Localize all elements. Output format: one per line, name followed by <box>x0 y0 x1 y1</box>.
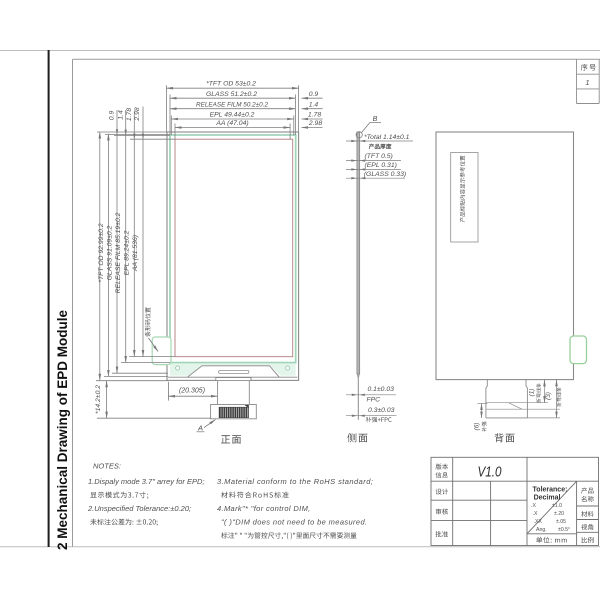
svg-text:.X: .X <box>531 503 536 509</box>
svg-text:2.Unspecified Tolerance:±0.20;: 2.Unspecified Tolerance:±0.20; <box>87 504 191 513</box>
svg-text:*Total 1.14±0.1: *Total 1.14±0.1 <box>364 134 410 141</box>
svg-text:1.78: 1.78 <box>308 112 321 119</box>
svg-text:±.20: ±.20 <box>554 511 564 517</box>
svg-text:.X: .X <box>533 511 538 517</box>
svg-text:"( )"DIM does not need to be m: "( )"DIM does not need to be measured. <box>221 518 368 527</box>
svg-text:Tolerance:: Tolerance: <box>533 487 568 494</box>
svg-text:0.9: 0.9 <box>109 111 116 121</box>
svg-text:(20.305): (20.305) <box>179 387 205 394</box>
svg-text:0.9: 0.9 <box>309 91 319 98</box>
svg-text:1.78: 1.78 <box>126 108 133 121</box>
svg-text:*TFT OD 92.99±0.2: *TFT OD 92.99±0.2 <box>98 223 105 282</box>
svg-text:4.Mark"* "for control DIM,: 4.Mark"* "for control DIM, <box>217 504 311 513</box>
svg-text:A: A <box>197 424 203 433</box>
svg-text:AA (81.536): AA (81.536) <box>132 235 139 272</box>
svg-text:GLASS 51.2±0.2: GLASS 51.2±0.2 <box>206 91 257 98</box>
svg-text:0.1±0.03: 0.1±0.03 <box>368 386 395 393</box>
svg-text:2.98: 2.98 <box>134 107 141 121</box>
svg-text:EPL 89.24±0.2: EPL 89.24±0.2 <box>124 230 131 275</box>
svg-text:Decimal: Decimal <box>534 495 561 502</box>
svg-text:Ang.: Ang. <box>536 527 547 533</box>
svg-text:NOTES:: NOTES: <box>93 462 121 471</box>
svg-text:3.Material conform to the RoHS: 3.Material conform to the RoHS standard; <box>217 477 373 486</box>
svg-text:AA (47.04): AA (47.04) <box>215 120 248 127</box>
svg-text:(6): (6) <box>474 423 481 431</box>
svg-text:GLASS 91.09±0.2: GLASS 91.09±0.2 <box>107 225 114 280</box>
svg-text:.XX: .XX <box>534 519 543 525</box>
svg-text:(GLASS 0.33): (GLASS 0.33) <box>364 171 406 178</box>
svg-text:*TFT OD 53±0.2: *TFT OD 53±0.2 <box>206 81 256 88</box>
svg-text:±0.5°: ±0.5° <box>558 527 570 533</box>
svg-text:±.05: ±.05 <box>556 519 566 525</box>
svg-text:1.4: 1.4 <box>309 101 319 108</box>
svg-text:RELEASE FILM 85.19±0.2: RELEASE FILM 85.19±0.2 <box>115 212 122 293</box>
svg-text:1: 1 <box>585 78 589 87</box>
svg-text:2 Mechanical Drawing of EPD Mo: 2 Mechanical Drawing of EPD Module <box>55 309 70 550</box>
svg-text:V1.0: V1.0 <box>478 465 502 481</box>
svg-text:0.3±0.03: 0.3±0.03 <box>368 407 395 414</box>
svg-text:B: B <box>373 114 378 123</box>
svg-text:(3): (3) <box>545 392 552 400</box>
svg-text:1.4: 1.4 <box>117 110 124 120</box>
svg-text:±1.0: ±1.0 <box>552 503 562 509</box>
svg-text:EPL 49.44±0.2: EPL 49.44±0.2 <box>210 112 255 119</box>
svg-text:(TFT 0.5): (TFT 0.5) <box>365 153 393 160</box>
svg-text:1.Dispaly mode 3.7" arrey for: 1.Dispaly mode 3.7" arrey for EPD; <box>88 477 204 486</box>
svg-text:RELEASE FILM 50.2±0.2: RELEASE FILM 50.2±0.2 <box>196 101 268 108</box>
svg-text:2.98: 2.98 <box>308 120 322 127</box>
svg-text:(EPL 0.31): (EPL 0.31) <box>365 162 397 169</box>
svg-text:(1): (1) <box>529 389 536 397</box>
svg-text:FPC: FPC <box>367 396 381 403</box>
svg-text:*14.2±0.2: *14.2±0.2 <box>95 385 102 414</box>
